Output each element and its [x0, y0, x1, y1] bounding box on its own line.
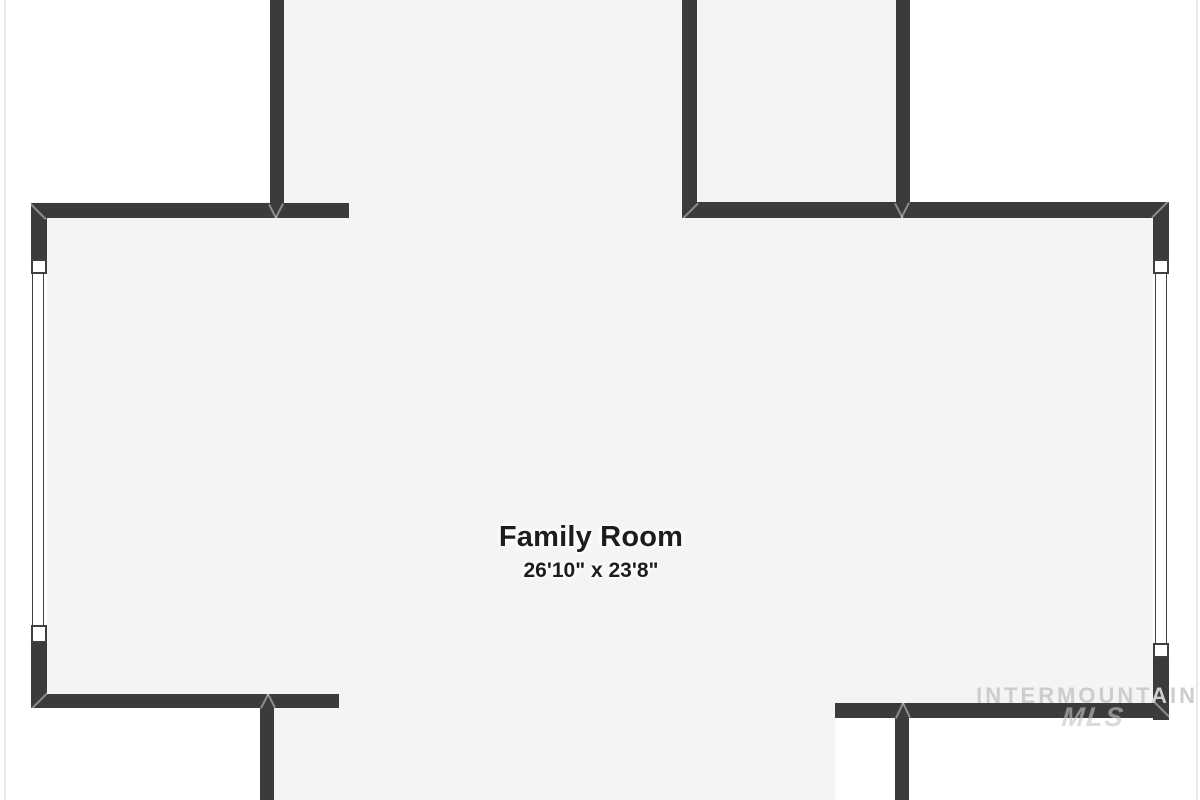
wall-bottom-left-horizontal [31, 694, 339, 708]
room-label-group: Family Room 26'10" x 23'8" [391, 521, 791, 583]
window-left-glass [32, 272, 44, 627]
window-right-bottom-cap [1153, 643, 1169, 658]
wall-top-middle-left-vertical [682, 0, 697, 218]
floor-lower-room [260, 694, 835, 800]
room-name: Family Room [391, 521, 791, 553]
window-left-bottom-cap [31, 625, 47, 643]
room-dimensions: 26'10" x 23'8" [391, 559, 791, 583]
wall-top-middle-right-vertical [896, 0, 910, 218]
floorplan-image: Family Room 26'10" x 23'8" INTERMOUNTAIN… [0, 0, 1200, 800]
wall-bottom-right-horizontal [835, 703, 1169, 718]
window-right-top-cap [1153, 259, 1169, 274]
image-left-edge-line [4, 0, 6, 800]
wall-top-left-horizontal [31, 203, 349, 218]
window-left-top-cap [31, 259, 47, 274]
wall-top-left-vertical [270, 0, 284, 218]
floor-family-room [31, 202, 1169, 708]
window-right-glass [1155, 272, 1167, 645]
wall-top-right-horizontal [682, 202, 1169, 218]
wall-bottom-left-vertical [260, 694, 274, 800]
wall-bottom-right-vertical [895, 703, 909, 800]
floor-upper-left-room [270, 0, 697, 219]
image-right-edge-line [1196, 0, 1198, 800]
floor-upper-middle-room [682, 0, 910, 219]
